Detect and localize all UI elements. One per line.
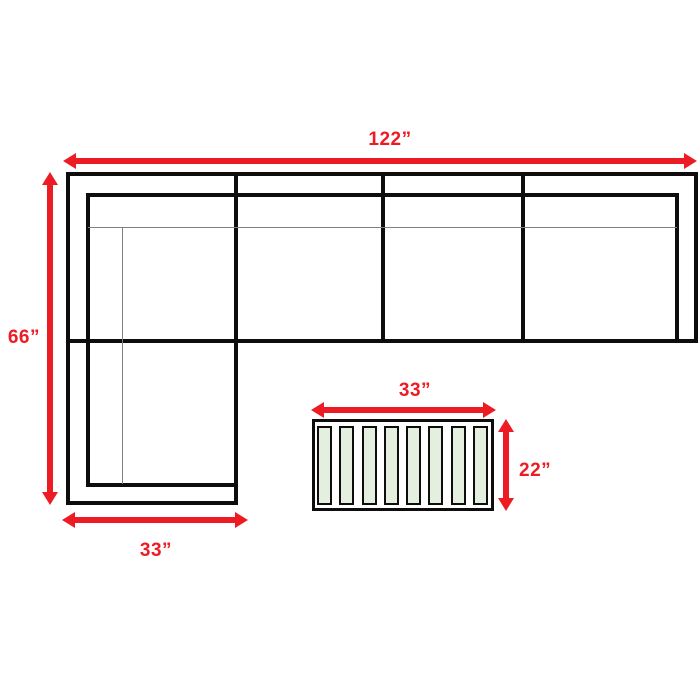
table-slat bbox=[317, 426, 332, 505]
table-slat bbox=[473, 426, 488, 505]
seat-cushion-seam-horizontal bbox=[88, 227, 677, 228]
table-slat bbox=[406, 426, 421, 505]
seat-divider-2 bbox=[381, 172, 385, 343]
seat-divider-3 bbox=[521, 172, 525, 343]
table-depth-label: 22” bbox=[519, 461, 551, 482]
chaise-width-label: 33” bbox=[96, 541, 216, 562]
sofa-depth-arrow-shaft bbox=[47, 184, 53, 493]
sofa-dimension-diagram: 122” 66” 33” 33” bbox=[0, 0, 700, 700]
table-slat bbox=[428, 426, 443, 505]
table-width-label: 33” bbox=[345, 381, 485, 402]
table-slat bbox=[384, 426, 399, 505]
arrowhead-right-icon bbox=[483, 402, 496, 418]
arrowhead-right-icon bbox=[235, 512, 248, 528]
table-width-arrow-shaft bbox=[322, 407, 484, 413]
table-depth-arrow-shaft bbox=[503, 430, 509, 500]
left-arm-inner-edge bbox=[86, 193, 90, 487]
table-slat-row bbox=[317, 426, 488, 505]
table-slat bbox=[339, 426, 354, 505]
backrest-inner-edge bbox=[86, 193, 679, 197]
arrowhead-down-icon bbox=[42, 492, 58, 505]
sofa-width-arrow-shaft bbox=[75, 158, 685, 164]
seat-cushion-seam-vertical bbox=[122, 227, 123, 484]
sofa-chaise-section-outer bbox=[66, 339, 238, 505]
arrowhead-right-icon bbox=[684, 153, 697, 169]
table-slat bbox=[451, 426, 466, 505]
sofa-depth-label: 66” bbox=[0, 328, 40, 349]
table-slat bbox=[362, 426, 377, 505]
chaise-front-inner-edge bbox=[86, 483, 238, 487]
sofa-width-label: 122” bbox=[320, 130, 460, 151]
right-arm-inner-edge bbox=[675, 193, 679, 343]
chaise-width-arrow-shaft bbox=[74, 517, 236, 523]
seat-divider-1 bbox=[234, 172, 238, 343]
arrowhead-down-icon bbox=[498, 498, 514, 511]
